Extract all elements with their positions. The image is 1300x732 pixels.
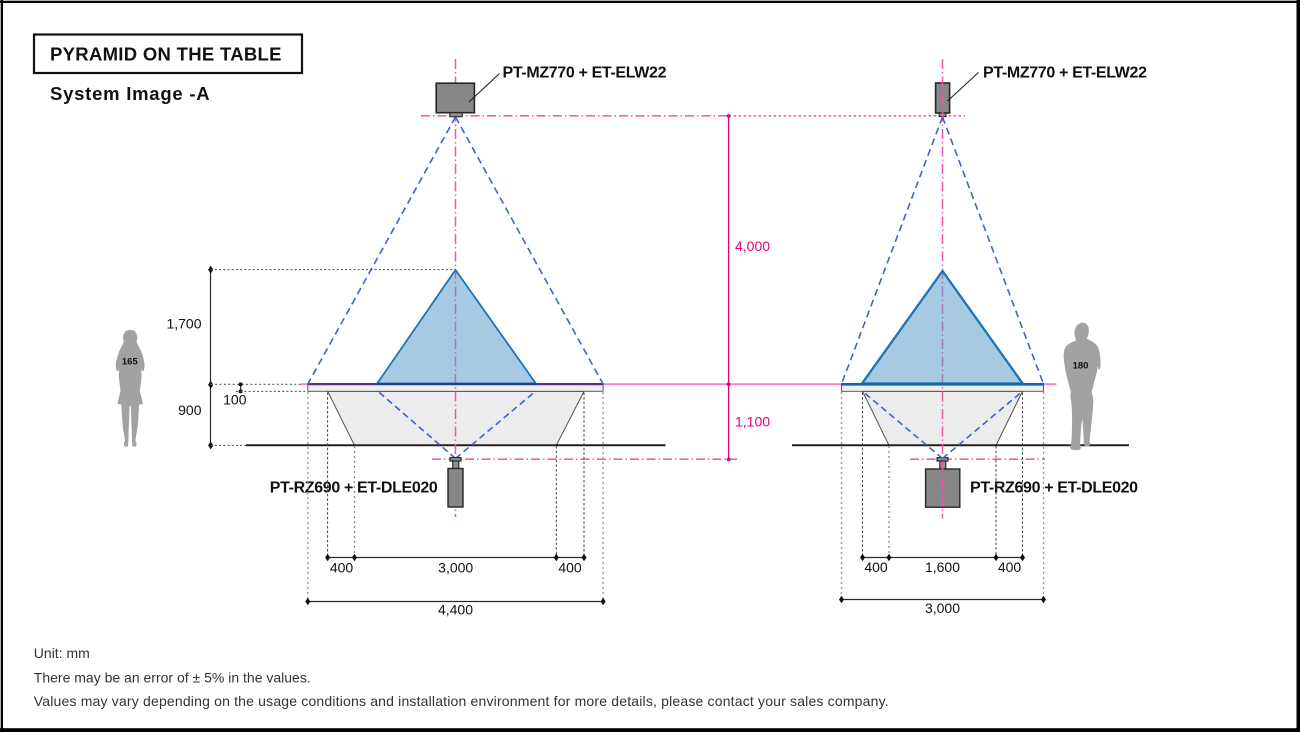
svg-text:PT-RZ690 + ET-DLE020: PT-RZ690 + ET-DLE020: [970, 480, 1138, 497]
svg-text:PT-MZ770 + ET-ELW22: PT-MZ770 + ET-ELW22: [983, 65, 1147, 82]
svg-text:3,000: 3,000: [438, 560, 473, 576]
svg-text:1,600: 1,600: [925, 559, 960, 575]
svg-text:Values may vary depending on t: Values may vary depending on the usage c…: [34, 693, 889, 709]
svg-text:400: 400: [330, 560, 354, 576]
svg-text:165: 165: [122, 357, 139, 368]
svg-text:System Image -A: System Image -A: [50, 83, 210, 104]
svg-text:4,400: 4,400: [438, 602, 473, 618]
svg-text:180: 180: [1073, 361, 1089, 372]
svg-text:1,100: 1,100: [735, 414, 770, 430]
svg-text:400: 400: [864, 559, 888, 575]
svg-text:PT-RZ690 + ET-DLE020: PT-RZ690 + ET-DLE020: [270, 480, 438, 497]
svg-text:400: 400: [998, 559, 1022, 575]
svg-text:900: 900: [178, 402, 202, 418]
svg-text:3,000: 3,000: [925, 600, 960, 616]
svg-text:4,000: 4,000: [735, 238, 770, 254]
svg-text:1,700: 1,700: [166, 316, 201, 332]
svg-text:400: 400: [558, 560, 582, 576]
svg-text:PT-MZ770 + ET-ELW22: PT-MZ770 + ET-ELW22: [503, 65, 667, 82]
svg-text:Unit: mm: Unit: mm: [34, 645, 90, 661]
svg-text:100: 100: [223, 392, 247, 408]
svg-text:PYRAMID ON THE TABLE: PYRAMID ON THE TABLE: [50, 44, 282, 65]
svg-text:There may be an error of ± 5%: There may be an error of ± 5% in the val…: [34, 670, 311, 686]
